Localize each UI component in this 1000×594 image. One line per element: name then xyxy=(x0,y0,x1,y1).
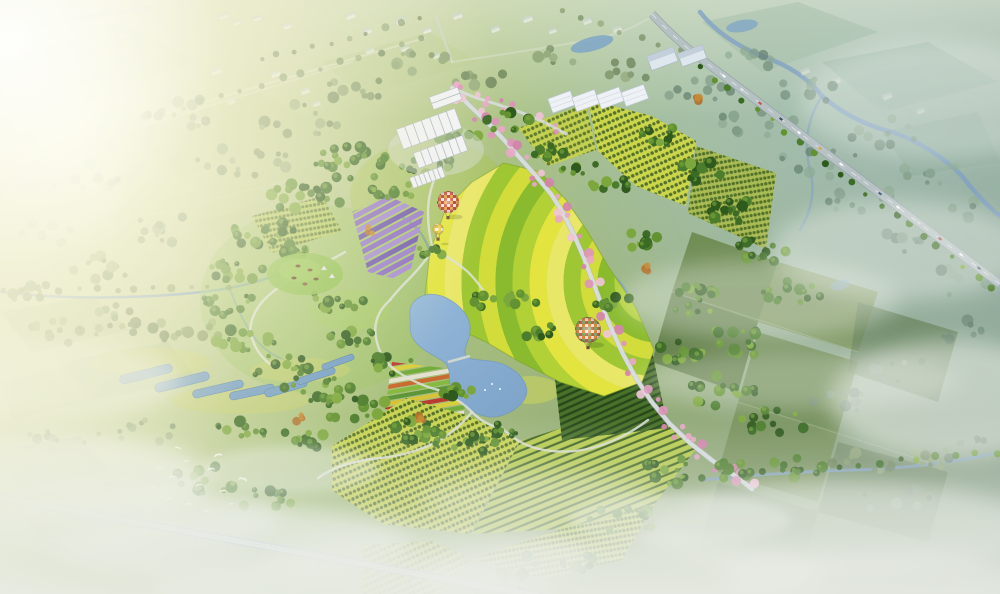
scene-svg xyxy=(0,0,1000,594)
layer-fog xyxy=(0,0,1000,594)
aerial-rendering-canvas xyxy=(0,0,1000,594)
